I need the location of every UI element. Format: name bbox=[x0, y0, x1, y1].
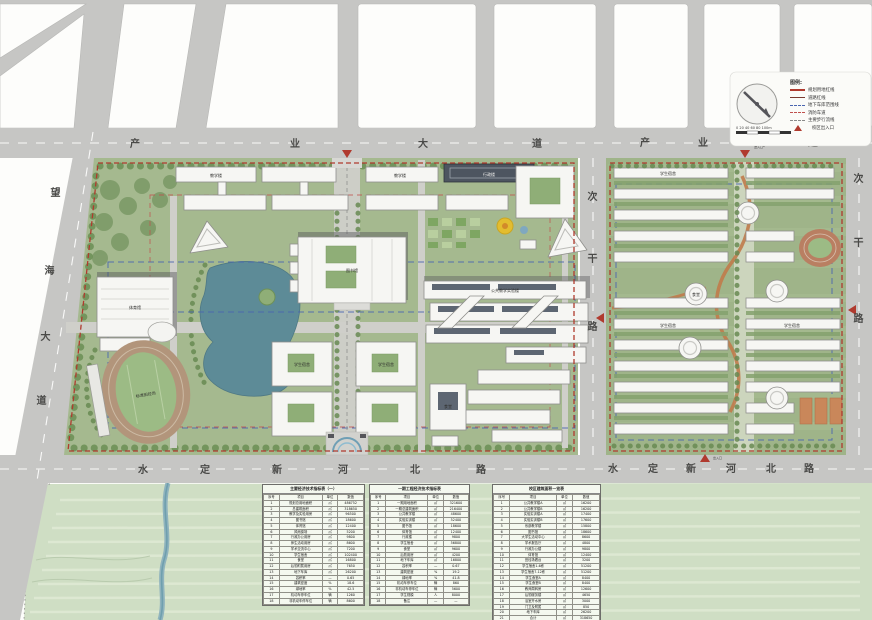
svg-text:道: 道 bbox=[37, 394, 48, 407]
gymnasium bbox=[97, 272, 177, 351]
svg-text:0 20 40 60 80 100m: 0 20 40 60 80 100m bbox=[736, 126, 772, 130]
svg-text:水: 水 bbox=[137, 463, 149, 476]
svg-text:产: 产 bbox=[640, 136, 651, 149]
svg-text:次: 次 bbox=[588, 190, 599, 203]
compass-icon bbox=[737, 84, 777, 124]
svg-text:水: 水 bbox=[607, 462, 619, 475]
legend-item: 地下车库范围线 bbox=[790, 102, 870, 108]
master-plan-canvas: 出入口 出入口 产 业 大 道 产 业 大 道 水 定 新 河 北 路 水 定 … bbox=[0, 0, 872, 620]
gate-label: 出入口 bbox=[713, 455, 722, 460]
svg-text:产: 产 bbox=[130, 137, 141, 150]
svg-text:学生宿舍: 学生宿舍 bbox=[660, 170, 676, 176]
svg-text:公共教学实验楼: 公共教学实验楼 bbox=[491, 287, 519, 293]
table-economic-indicators-1: 主要经济技术指标表（一）序号项目单位数值1规划总用地面积㎡4867522总建筑面… bbox=[262, 484, 365, 606]
svg-text:图书馆: 图书馆 bbox=[346, 267, 358, 273]
svg-text:学生宿舍: 学生宿舍 bbox=[784, 322, 800, 328]
legend-item: 消防车道 bbox=[790, 110, 870, 116]
legend-item: 道路红线 bbox=[790, 95, 870, 101]
svg-text:体育馆: 体育馆 bbox=[129, 304, 141, 310]
legend-swatch-triangle-red bbox=[794, 125, 802, 131]
svg-text:北: 北 bbox=[410, 463, 421, 476]
svg-text:学生宿舍: 学生宿舍 bbox=[294, 361, 310, 367]
legend-swatch-solid-darkred bbox=[790, 97, 805, 98]
legend-swatch-solid-red bbox=[790, 89, 805, 91]
svg-text:路: 路 bbox=[476, 463, 487, 476]
svg-text:学生宿舍: 学生宿舍 bbox=[660, 322, 676, 328]
svg-text:大: 大 bbox=[418, 137, 429, 150]
svg-text:新: 新 bbox=[272, 463, 283, 476]
campus-west bbox=[64, 158, 590, 455]
svg-text:食堂: 食堂 bbox=[692, 291, 700, 297]
svg-text:定: 定 bbox=[648, 462, 659, 475]
svg-text:定: 定 bbox=[200, 463, 211, 476]
svg-text:路: 路 bbox=[854, 312, 865, 325]
svg-text:干: 干 bbox=[854, 237, 865, 249]
svg-text:路: 路 bbox=[804, 462, 815, 475]
legend-item: 校区出入口 bbox=[790, 125, 870, 131]
legend-swatch-dash-blue bbox=[790, 105, 805, 106]
legend-item: 主要步行流线 bbox=[790, 117, 870, 123]
svg-text:食堂: 食堂 bbox=[444, 403, 452, 409]
svg-text:教学楼: 教学楼 bbox=[394, 172, 406, 178]
legend-item: 规划用地红线 bbox=[790, 87, 870, 93]
lake-island bbox=[259, 289, 275, 305]
svg-text:业: 业 bbox=[698, 136, 709, 149]
svg-text:行政楼: 行政楼 bbox=[483, 171, 495, 177]
legend-swatch-dash-gray bbox=[790, 120, 805, 121]
legend-title: 图例: bbox=[790, 79, 870, 86]
canopy-structure bbox=[148, 322, 176, 342]
legend: 图例: 规划用地红线 道路红线 地下车库范围线 消防车道 主要步行流线 校区出入… bbox=[790, 79, 870, 133]
legend-swatch-dash-red bbox=[790, 112, 805, 113]
svg-text:河: 河 bbox=[338, 464, 349, 476]
svg-text:海: 海 bbox=[45, 264, 56, 277]
table-building-areas: 校区建筑面积一览表序号项目单位数值1公共教学楼A㎡162002公共教学楼B㎡16… bbox=[492, 484, 601, 620]
fountain bbox=[520, 226, 528, 234]
svg-text:望: 望 bbox=[51, 186, 62, 199]
svg-text:河: 河 bbox=[726, 463, 737, 475]
practice-track bbox=[799, 229, 841, 267]
svg-text:道: 道 bbox=[532, 137, 543, 150]
svg-text:路: 路 bbox=[588, 320, 599, 333]
svg-text:业: 业 bbox=[290, 137, 301, 150]
svg-text:新: 新 bbox=[686, 462, 697, 475]
svg-text:学生宿舍: 学生宿舍 bbox=[378, 361, 394, 367]
campus-east bbox=[606, 158, 846, 455]
svg-text:大: 大 bbox=[41, 330, 52, 343]
svg-text:干: 干 bbox=[588, 253, 599, 265]
table-economic-indicators-2: 一期工程经济技术指标表序号项目单位数值1一期用地面积㎡3216002一期总建筑面… bbox=[369, 484, 470, 606]
svg-text:次: 次 bbox=[854, 172, 865, 185]
svg-text:教学楼: 教学楼 bbox=[210, 172, 222, 178]
svg-text:北: 北 bbox=[766, 462, 777, 475]
basketball-courts bbox=[800, 398, 842, 424]
